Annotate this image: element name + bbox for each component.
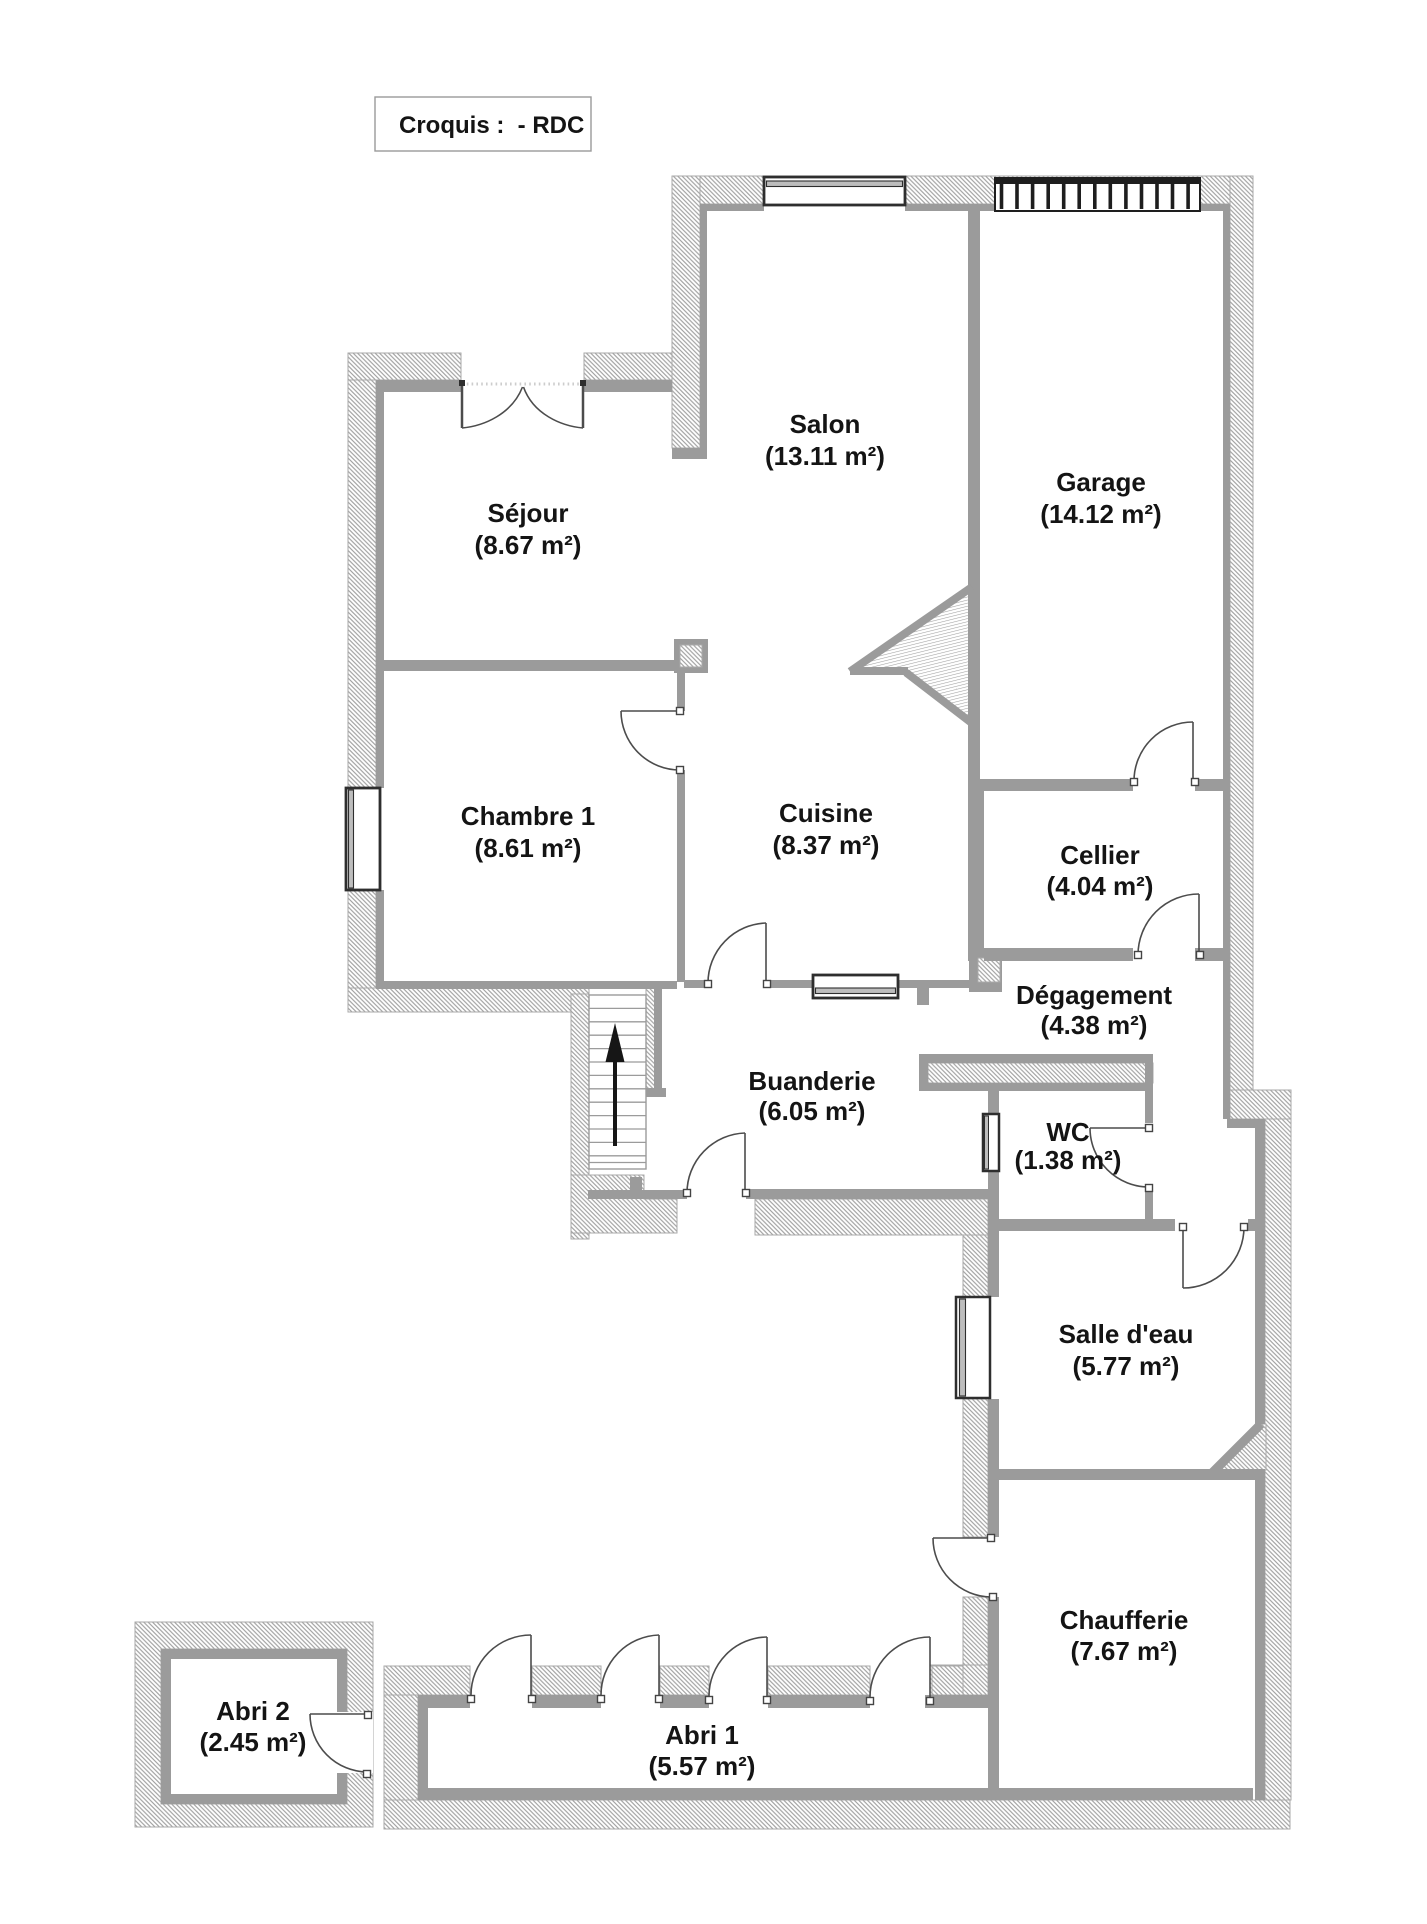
svg-text:Salon: Salon (790, 409, 861, 439)
svg-text:WC: WC (1046, 1117, 1090, 1147)
svg-text:(1.38 m²): (1.38 m²) (1015, 1145, 1122, 1175)
svg-text:Buanderie: Buanderie (748, 1066, 875, 1096)
svg-text:(2.45 m²): (2.45 m²) (200, 1727, 307, 1757)
svg-text:Cellier: Cellier (1060, 840, 1140, 870)
svg-text:(8.61 m²): (8.61 m²) (475, 833, 582, 863)
svg-text:Dégagement: Dégagement (1016, 980, 1172, 1010)
svg-text:Abri 2: Abri 2 (216, 1696, 290, 1726)
svg-text:(8.67 m²): (8.67 m²) (475, 530, 582, 560)
svg-text:Garage: Garage (1056, 467, 1146, 497)
svg-text:Chambre 1: Chambre 1 (461, 801, 595, 831)
svg-text:(5.77 m²): (5.77 m²) (1073, 1351, 1180, 1381)
svg-text:(6.05 m²): (6.05 m²) (759, 1096, 866, 1126)
svg-text:Séjour: Séjour (488, 498, 569, 528)
svg-text:(5.57 m²): (5.57 m²) (649, 1751, 756, 1781)
svg-text:(7.67 m²): (7.67 m²) (1071, 1636, 1178, 1666)
svg-text:(14.12 m²): (14.12 m²) (1040, 499, 1161, 529)
svg-text:Cuisine: Cuisine (779, 798, 873, 828)
svg-text:(8.37 m²): (8.37 m²) (773, 830, 880, 860)
svg-text:(13.11 m²): (13.11 m²) (765, 441, 885, 471)
svg-text:Chaufferie: Chaufferie (1060, 1605, 1189, 1635)
svg-text:Salle d'eau: Salle d'eau (1059, 1319, 1194, 1349)
svg-text:Abri 1: Abri 1 (665, 1720, 739, 1750)
svg-text:(4.38 m²): (4.38 m²) (1041, 1010, 1148, 1040)
svg-text:(4.04 m²): (4.04 m²) (1047, 871, 1154, 901)
svg-text:Croquis : - RDC: Croquis : - RDC (399, 112, 584, 139)
